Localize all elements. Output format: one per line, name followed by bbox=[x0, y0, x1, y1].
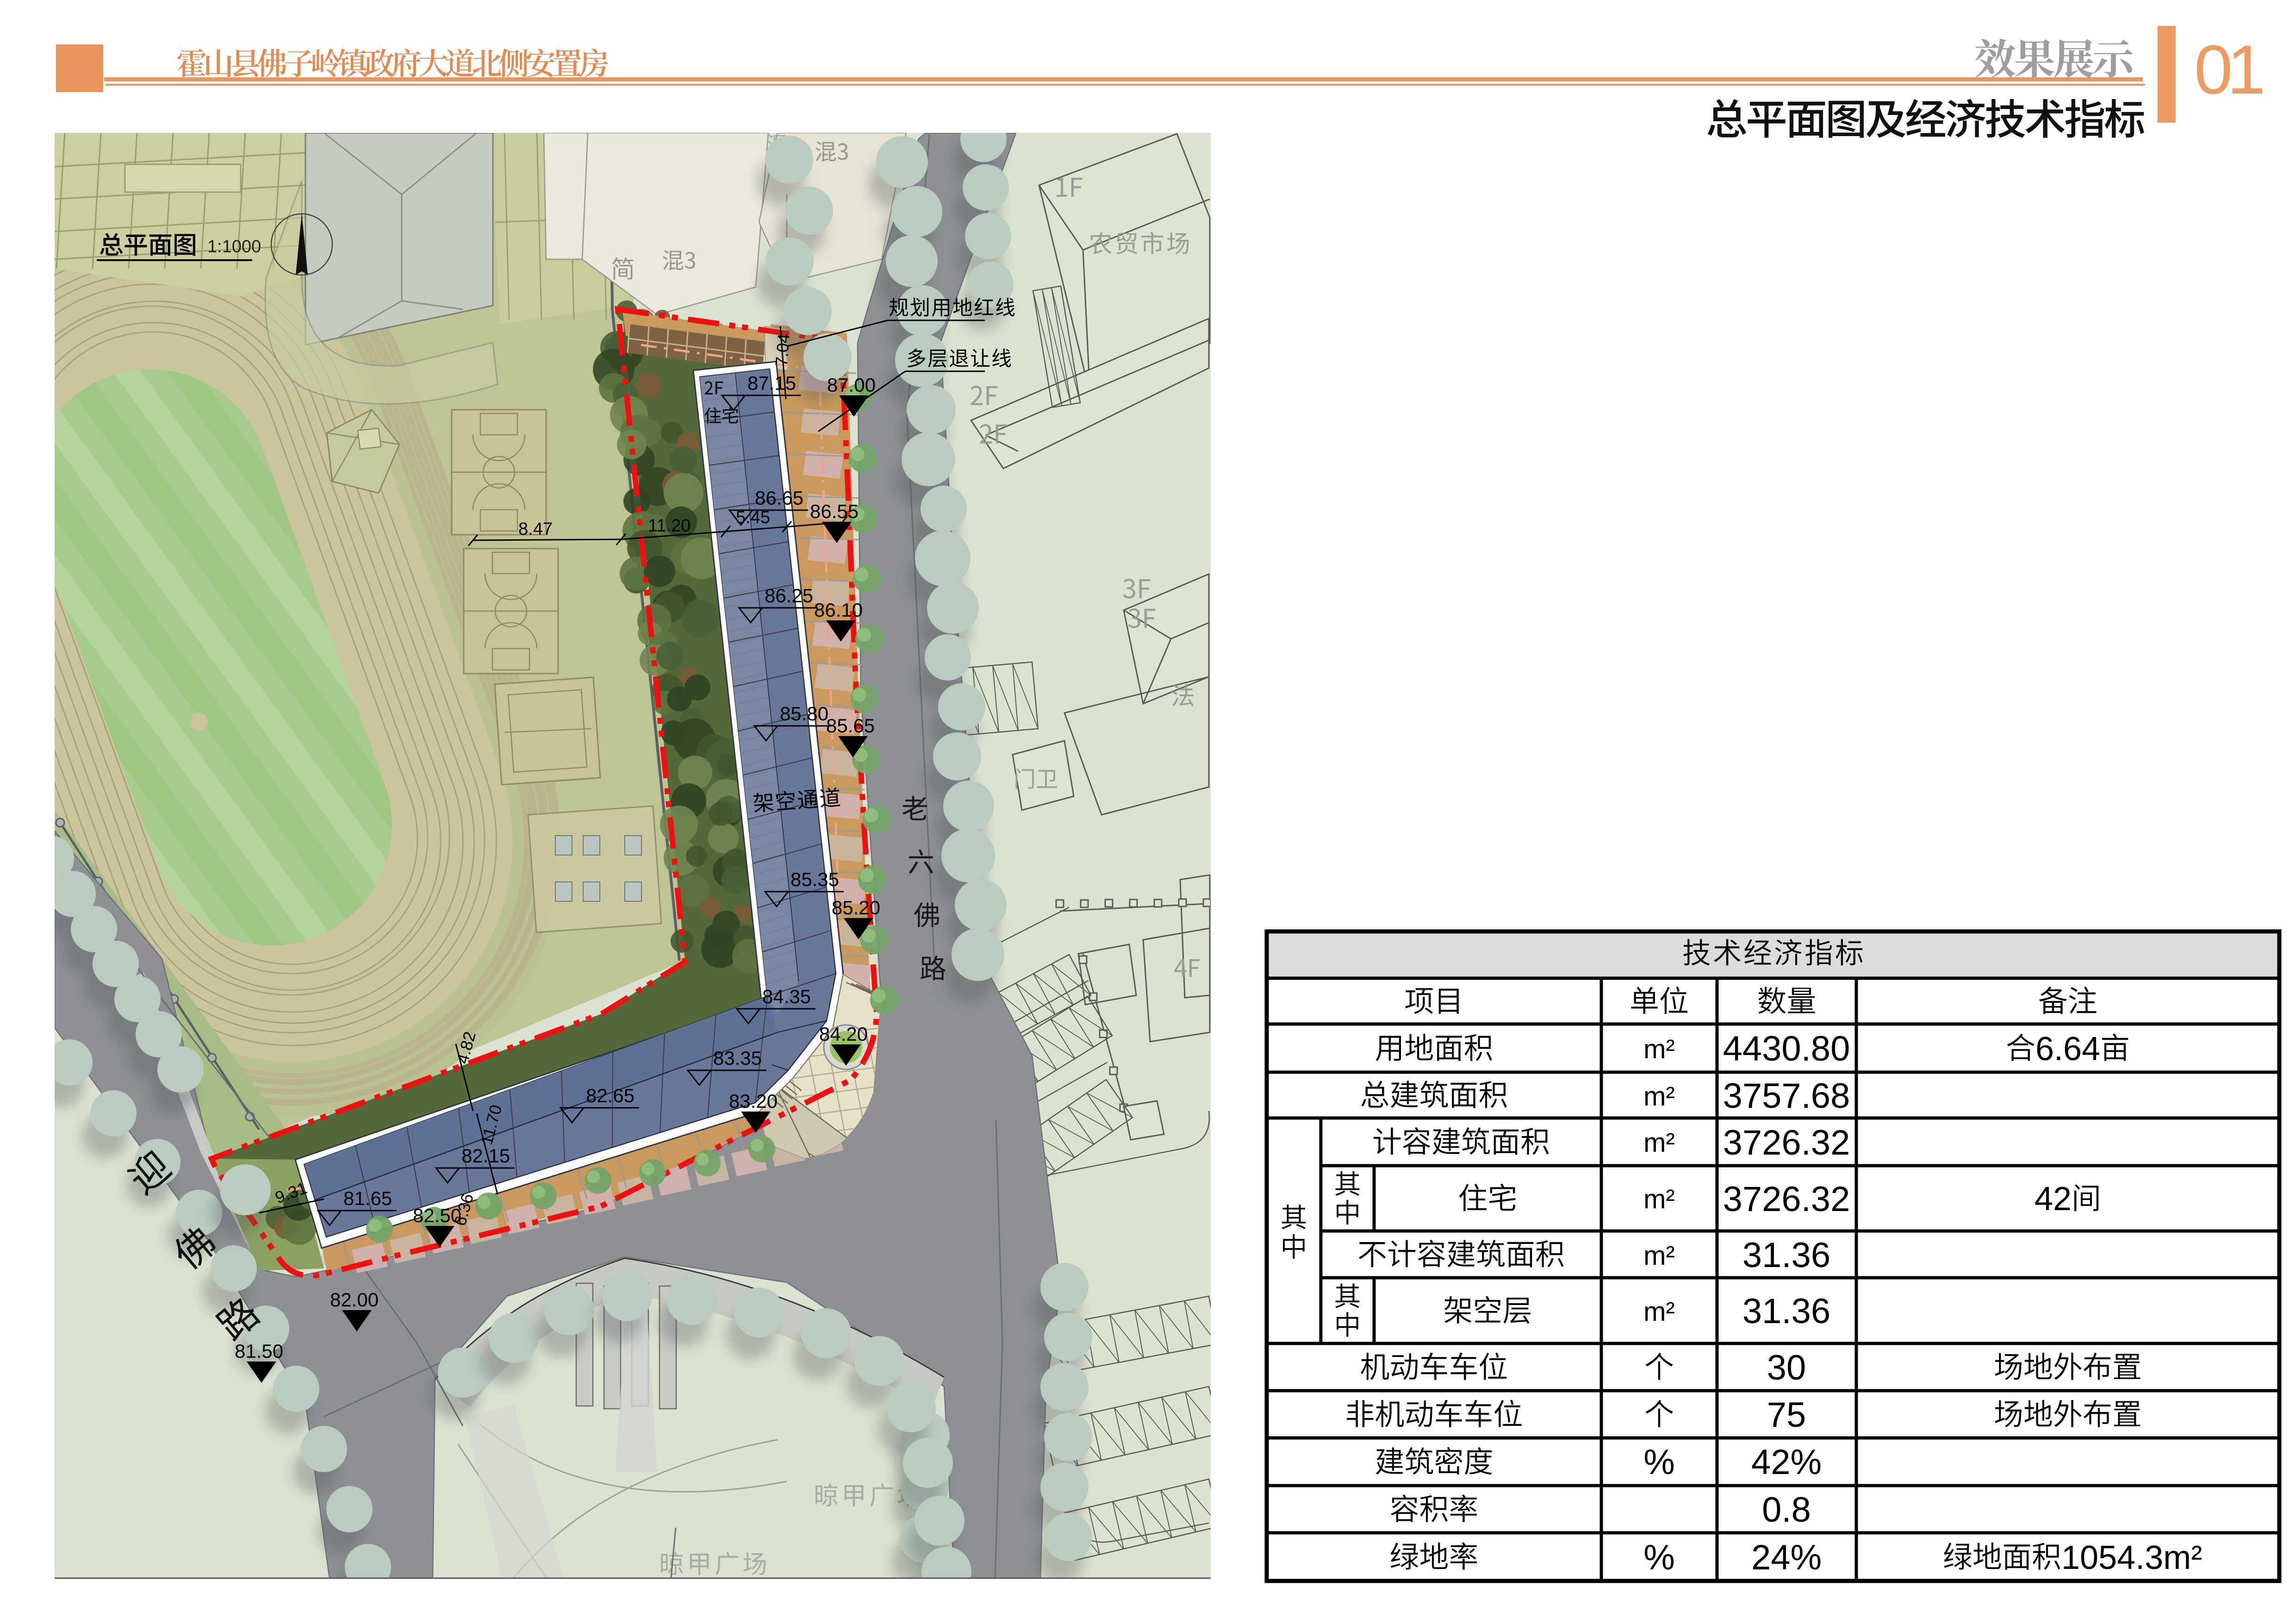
svg-text:m²: m² bbox=[1643, 1081, 1675, 1112]
svg-text:83.20: 83.20 bbox=[729, 1090, 778, 1112]
svg-text:3726.32: 3726.32 bbox=[1723, 1180, 1850, 1219]
svg-text:85.35: 85.35 bbox=[790, 868, 839, 890]
svg-text:m²: m² bbox=[1643, 1128, 1675, 1158]
svg-text:86.65: 86.65 bbox=[755, 487, 803, 509]
svg-text:m²: m² bbox=[1643, 1034, 1675, 1064]
svg-text:85.20: 85.20 bbox=[832, 897, 880, 918]
svg-text:5.45: 5.45 bbox=[736, 508, 770, 527]
svg-text:m²: m² bbox=[1643, 1241, 1675, 1271]
svg-text:42%: 42% bbox=[1751, 1443, 1822, 1482]
svg-text:1054.3m²: 1054.3m² bbox=[2061, 1539, 2202, 1576]
svg-text:82.00: 82.00 bbox=[330, 1289, 379, 1311]
svg-text:31.36: 31.36 bbox=[1742, 1236, 1830, 1275]
svg-text:85.80: 85.80 bbox=[780, 703, 828, 725]
svg-text:82.65: 82.65 bbox=[586, 1085, 635, 1106]
svg-text:86.25: 86.25 bbox=[765, 585, 813, 606]
svg-text:3757.68: 3757.68 bbox=[1723, 1076, 1850, 1116]
svg-text:30: 30 bbox=[1767, 1348, 1806, 1387]
svg-text:87.15: 87.15 bbox=[747, 372, 796, 394]
svg-text:4430.80: 4430.80 bbox=[1723, 1029, 1850, 1068]
svg-text:8.47: 8.47 bbox=[518, 519, 553, 539]
svg-text:86.55: 86.55 bbox=[810, 500, 859, 522]
svg-text:42: 42 bbox=[2035, 1181, 2072, 1218]
svg-text:31.36: 31.36 bbox=[1742, 1292, 1830, 1331]
svg-text:81.65: 81.65 bbox=[343, 1187, 392, 1209]
svg-text:m²: m² bbox=[1643, 1184, 1675, 1214]
svg-text:1:1000: 1:1000 bbox=[207, 237, 261, 256]
svg-text:11.20: 11.20 bbox=[648, 516, 691, 536]
svg-text:87.00: 87.00 bbox=[827, 374, 876, 396]
svg-text:84.35: 84.35 bbox=[762, 986, 811, 1007]
svg-text:81.50: 81.50 bbox=[235, 1340, 283, 1362]
svg-text:3726.32: 3726.32 bbox=[1723, 1123, 1850, 1162]
svg-text:83.35: 83.35 bbox=[713, 1047, 762, 1069]
svg-text:m²: m² bbox=[1643, 1297, 1675, 1327]
svg-text:%: % bbox=[1643, 1538, 1675, 1577]
svg-text:0.8: 0.8 bbox=[1762, 1490, 1811, 1530]
svg-text:24%: 24% bbox=[1751, 1538, 1822, 1577]
svg-text:6.64: 6.64 bbox=[2035, 1031, 2100, 1068]
svg-text:%: % bbox=[1643, 1443, 1675, 1482]
svg-text:84.20: 84.20 bbox=[819, 1023, 868, 1045]
svg-text:86.10: 86.10 bbox=[814, 599, 863, 621]
svg-text:85.65: 85.65 bbox=[826, 715, 875, 737]
svg-text:1: 1 bbox=[2227, 31, 2265, 108]
svg-text:75: 75 bbox=[1767, 1395, 1806, 1435]
